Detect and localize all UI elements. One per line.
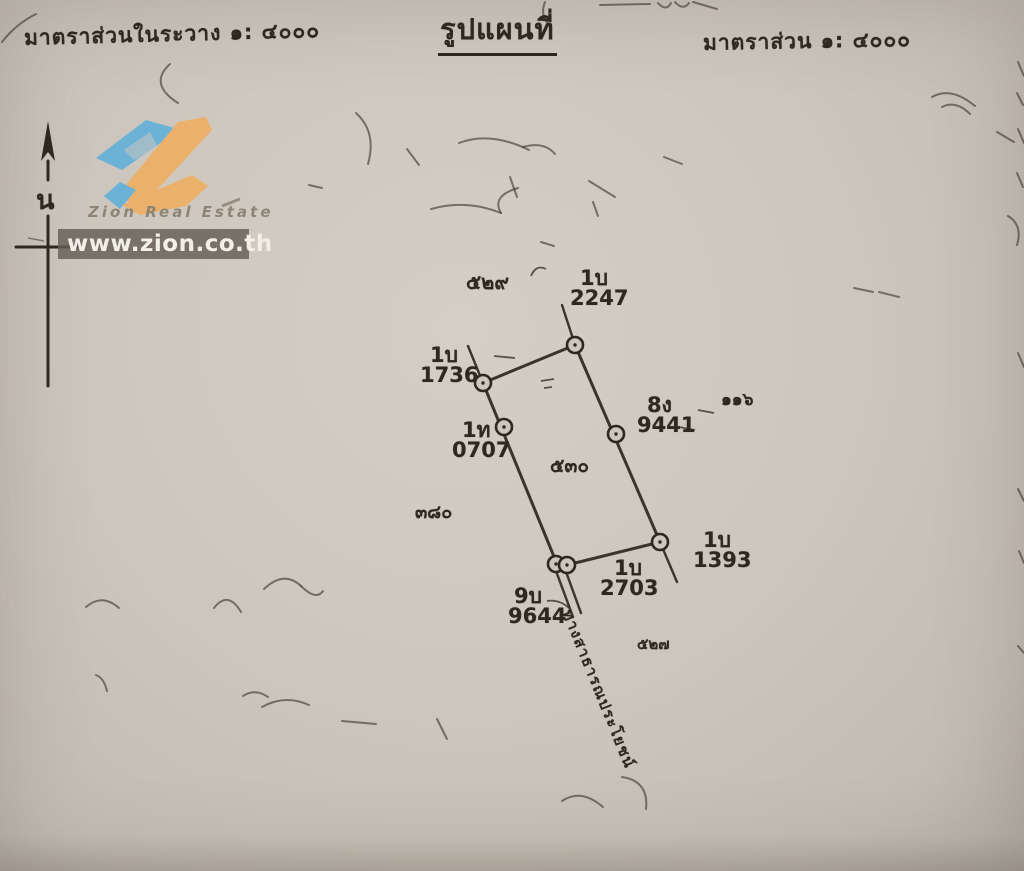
parcel-number-center: ๕๓๐ — [550, 451, 589, 481]
marker-number: 1736 — [420, 365, 478, 385]
marker-label-2247: 1บ 2247 — [570, 268, 628, 308]
scanned-survey-document: มาตราส่วนในระวาง ๑: ๔๐๐๐ รูปแผนที่ มาตรา… — [0, 0, 1024, 871]
marker-prefix: 8ง — [637, 395, 695, 415]
marker-number: 9441 — [637, 415, 695, 435]
watermark-url-bar: www.zion.co.th — [58, 229, 249, 259]
watermark-brand-name: Zion Real Estate — [88, 203, 274, 221]
marker-number: 2703 — [600, 578, 658, 598]
marker-prefix: 1บ — [600, 558, 658, 578]
marker-prefix: 1ท — [452, 420, 510, 440]
plot-edge-right — [575, 345, 660, 542]
plot-edge-top — [483, 345, 575, 383]
marker-label-0707: 1ท 0707 — [452, 420, 510, 460]
adjacent-parcel-top: ๕๒๙ — [466, 266, 509, 298]
adjacent-parcel-bottom: ๕๒๗ — [637, 632, 670, 656]
plot-edge-left — [483, 383, 557, 564]
marker-number: 1393 — [693, 550, 751, 570]
marker-label-1393: 1บ 1393 — [693, 530, 751, 570]
watermark-url: www.zion.co.th — [67, 231, 273, 257]
marker-number: 0707 — [452, 440, 510, 460]
page-title: รูปแผนที่ — [438, 6, 557, 56]
scale-right-label: มาตราส่วน ๑: ๔๐๐๐ — [703, 23, 912, 60]
marker-prefix: 1บ — [420, 345, 478, 365]
marker-label-2703: 1บ 2703 — [600, 558, 658, 598]
marker-prefix: 9บ — [508, 586, 566, 606]
marker-prefix: 1บ — [693, 530, 751, 550]
marker-number: 2247 — [570, 288, 628, 308]
marker-label-9441: 8ง 9441 — [637, 395, 695, 435]
adjacent-parcel-left: ๓๘๐ — [415, 497, 452, 526]
marker-label-1736: 1บ 1736 — [420, 345, 478, 385]
adjacent-parcel-right: ๑๑๖ — [721, 386, 753, 413]
zion-logo-icon — [0, 0, 260, 230]
marker-prefix: 1บ — [570, 268, 628, 288]
